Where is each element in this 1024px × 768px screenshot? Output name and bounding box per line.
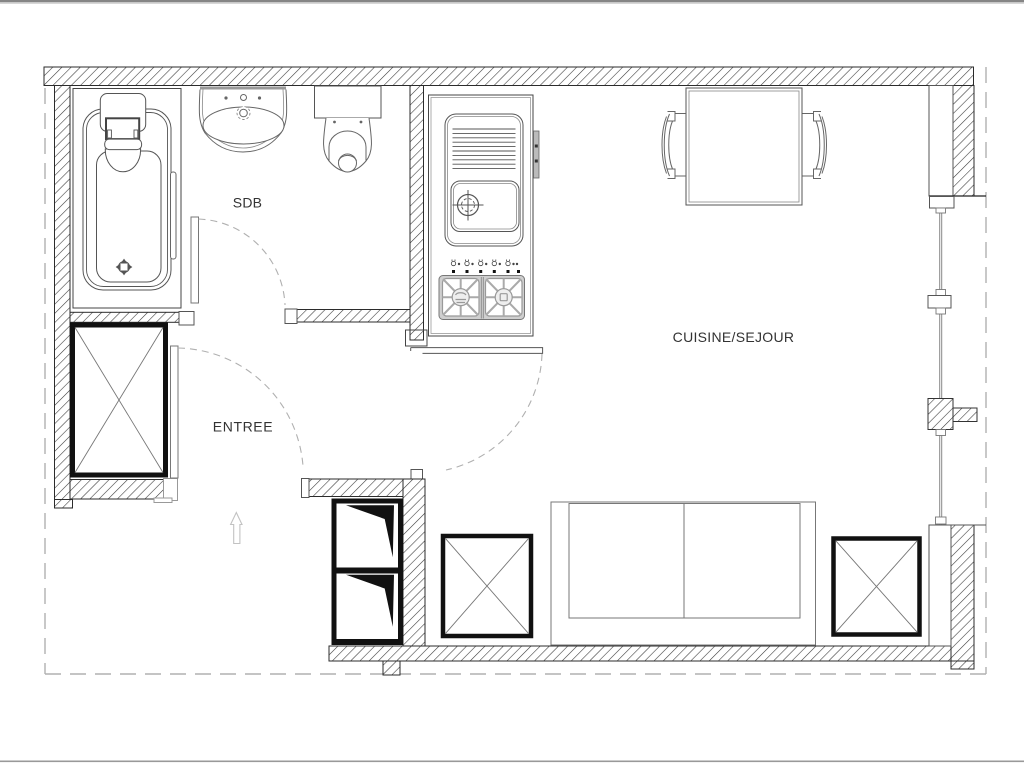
svg-text:ENTREE: ENTREE	[213, 419, 273, 435]
svg-text:SDB: SDB	[233, 195, 262, 211]
svg-text:CUISINE/SEJOUR: CUISINE/SEJOUR	[673, 329, 795, 345]
